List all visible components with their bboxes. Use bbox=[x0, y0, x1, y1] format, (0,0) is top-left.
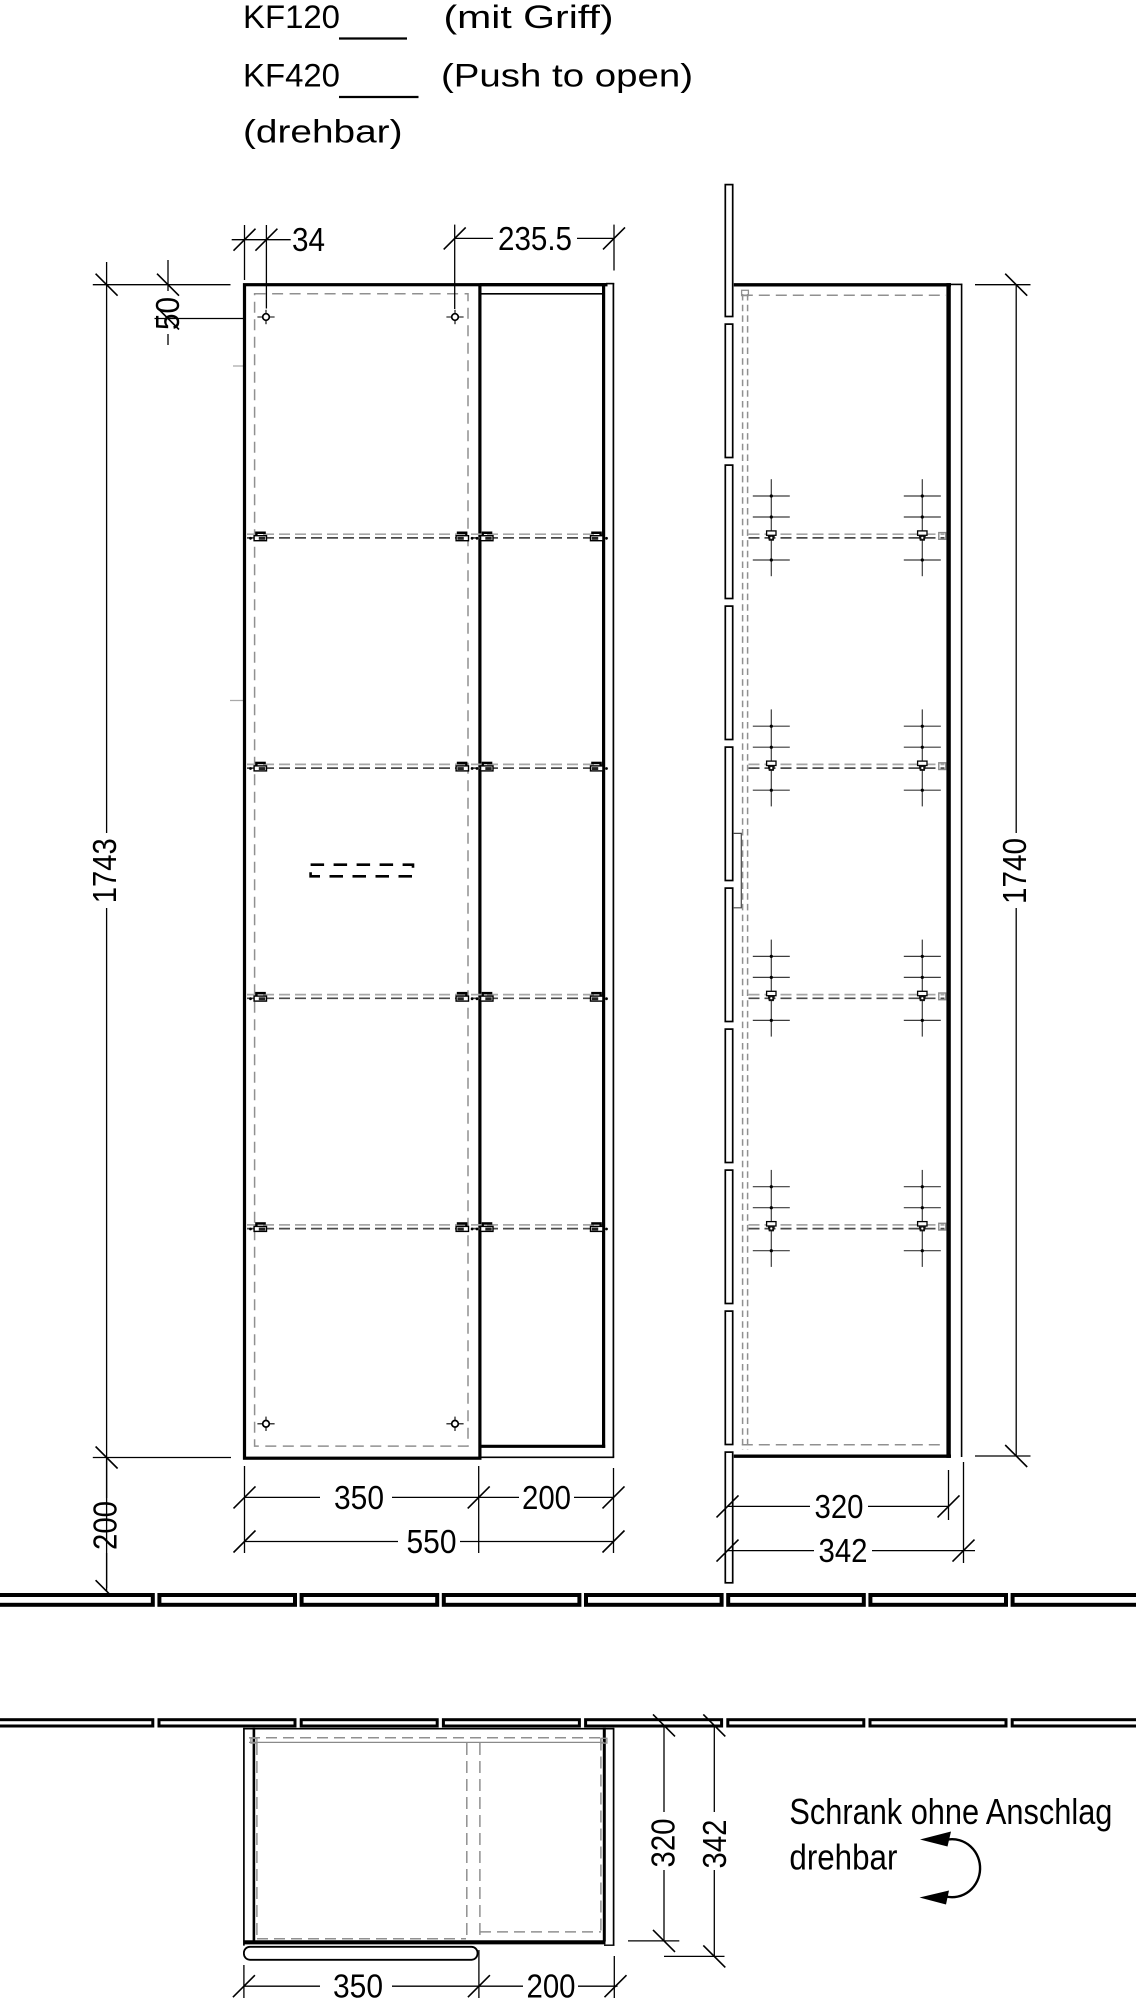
svg-text:(mit Griff): (mit Griff) bbox=[444, 0, 614, 35]
svg-text:550: 550 bbox=[407, 1523, 457, 1560]
svg-text:320: 320 bbox=[815, 1488, 864, 1525]
svg-text:350: 350 bbox=[333, 1968, 383, 2000]
svg-text:Schrank ohne Anschlag: Schrank ohne Anschlag bbox=[789, 1791, 1112, 1832]
svg-text:320: 320 bbox=[645, 1819, 682, 1868]
svg-text:(drehbar): (drehbar) bbox=[243, 114, 403, 150]
svg-text:50: 50 bbox=[149, 297, 186, 330]
svg-text:KF120: KF120 bbox=[243, 0, 340, 35]
svg-text:1743: 1743 bbox=[86, 838, 123, 903]
svg-text:342: 342 bbox=[819, 1532, 868, 1569]
svg-text:235.5: 235.5 bbox=[498, 220, 572, 257]
svg-text:34: 34 bbox=[292, 221, 325, 258]
svg-text:200: 200 bbox=[527, 1968, 576, 2000]
svg-text:200: 200 bbox=[86, 1501, 123, 1550]
svg-text:1740: 1740 bbox=[996, 838, 1033, 904]
svg-text:(Push to open): (Push to open) bbox=[441, 58, 693, 94]
svg-text:350: 350 bbox=[334, 1479, 384, 1516]
svg-text:KF420: KF420 bbox=[243, 58, 340, 94]
svg-text:342: 342 bbox=[696, 1820, 733, 1869]
svg-text:drehbar: drehbar bbox=[789, 1836, 897, 1877]
svg-text:200: 200 bbox=[522, 1479, 571, 1516]
